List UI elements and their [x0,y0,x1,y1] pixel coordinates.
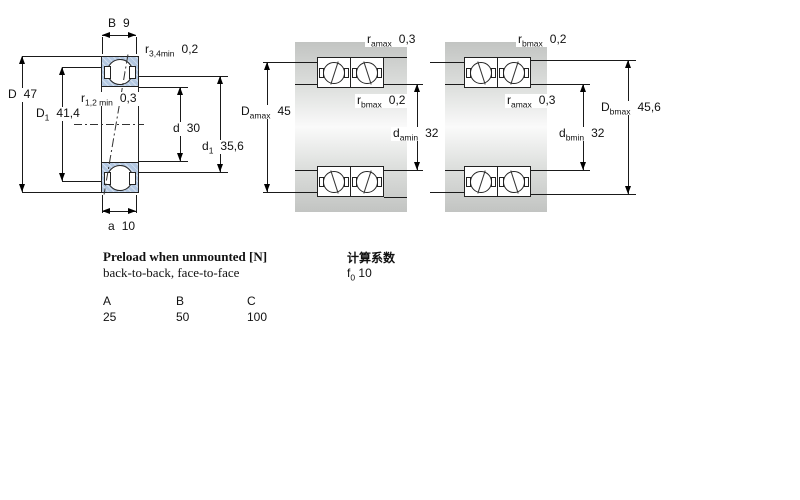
label-D: D47 [6,88,39,102]
calc-factors-title: 计算系数 [347,249,395,266]
label-rbmax: rbmax0,2 [355,94,407,108]
preload-class-header: C [247,294,256,308]
label-Dbmax: Dbmax45,6 [599,101,663,115]
label-damin: damin32 [391,127,440,141]
calc-factor-f0: f0 10 [347,266,372,282]
cage-pocket-icon [499,177,504,187]
preload-class-header: B [176,294,184,308]
arrow-icon [128,208,136,214]
arrow-icon [128,32,136,38]
label-d1: d135,6 [200,140,246,154]
housing-line [263,62,317,63]
bearing-section-top [101,56,139,87]
ext-line [139,172,228,173]
bearing-pair-bottom [317,166,384,197]
cage-pocket-icon [129,66,136,79]
center-line [74,124,144,125]
arrow-icon [19,184,25,192]
ext-line [22,56,101,57]
label-d: d30 [171,122,202,136]
arrow-icon [217,76,223,84]
arrow-icon [59,67,65,75]
bearing-drawing-page: B9 r3,4min0,2 D47 D141,4 r1,2 min0,3 d30… [0,0,800,500]
cage-pocket-icon [524,68,529,78]
arrow-icon [625,186,631,194]
ext-line [136,195,137,213]
label-ramax: ramax0,3 [505,94,557,108]
arrow-icon [177,87,183,95]
cage-pocket-icon [344,177,349,187]
bearing-cell [497,166,531,197]
arrow-icon [264,62,270,70]
cage-pocket-icon [352,68,357,78]
bearing-cell [497,57,531,88]
arrow-icon [177,153,183,161]
cage-pocket-icon [344,68,349,78]
ext-line [531,60,636,61]
bearing-cell [350,57,384,88]
bearing-pair-top [317,57,384,88]
ext-line [531,170,590,171]
arrow-icon [625,60,631,68]
cage-pocket-icon [352,177,357,187]
label-dbmin: dbmin32 [557,127,606,141]
cage-pocket-icon [499,68,504,78]
preload-class-header: A [103,294,111,308]
dim-line-D1 [62,67,63,181]
arrow-icon [102,32,110,38]
shaft-line [295,84,317,85]
ext-line [384,170,423,171]
bearing-cell [317,166,351,197]
arrow-icon [580,162,586,170]
arrow-icon [414,84,420,92]
ext-line [22,192,101,193]
shaft-line [445,170,464,171]
cage-pocket-icon [377,177,382,187]
label-r34min: r3,4min0,2 [143,43,200,57]
cage-pocket-icon [377,68,382,78]
bearing-cell [317,57,351,88]
label-r12min: r1,2 min0,3 [79,92,139,106]
preload-value: 100 [247,310,267,324]
label-D1: D141,4 [34,107,82,121]
bearing-cell [464,166,498,197]
bearing-cell [350,166,384,197]
shaft-line [384,197,407,198]
housing-line [263,192,317,193]
ext-line [136,37,137,54]
cage-pocket-icon [129,172,136,185]
cage-pocket-icon [104,66,111,79]
arrow-icon [19,56,25,64]
bearing-pair-bottom [464,166,531,197]
arrow-icon [59,173,65,181]
preload-subtitle: back-to-back, face-to-face [103,265,239,281]
cage-pocket-icon [466,68,471,78]
ext-line [139,161,188,162]
arrow-icon [102,208,110,214]
ext-line [531,194,636,195]
label-Damax: Damax45 [239,105,293,119]
ext-line [62,181,101,182]
shaft-line [430,192,464,193]
cage-pocket-icon [319,68,324,78]
dim-line-d1 [220,76,221,172]
dim-line-D [22,56,23,192]
arrow-icon [414,162,420,170]
cage-pocket-icon [466,177,471,187]
shaft-line [430,62,464,63]
cage-pocket-icon [491,177,496,187]
dim-line-Dbmax [628,60,629,194]
arrow-icon [580,84,586,92]
ext-line [139,76,228,77]
label-rbmax: rbmax0,2 [516,33,568,47]
shaft-line [384,57,407,58]
shaft-line [295,170,317,171]
cage-pocket-icon [524,177,529,187]
preload-value: 25 [103,310,116,324]
ext-line [102,37,103,54]
preload-value: 50 [176,310,189,324]
preload-title: Preload when unmounted [N] [103,249,267,265]
bearing-cell [464,57,498,88]
label-B: B9 [106,17,132,31]
cage-pocket-icon [491,68,496,78]
dim-line-Damax [267,62,268,192]
label-a: a10 [106,220,137,234]
shaft-line [445,84,464,85]
bearing-pair-top [464,57,531,88]
arrow-icon [264,184,270,192]
label-ramax: ramax0,3 [365,33,417,47]
arrow-icon [217,164,223,172]
ext-line [62,67,101,68]
cage-pocket-icon [319,177,324,187]
